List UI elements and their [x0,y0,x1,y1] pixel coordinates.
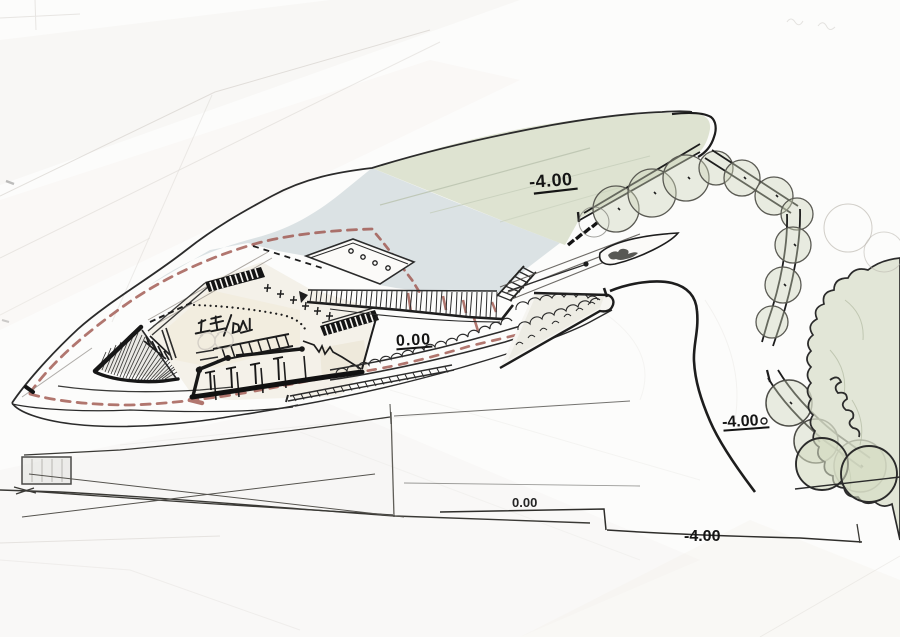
svg-text:-4.00: -4.00 [684,528,721,545]
svg-text:0.00: 0.00 [512,495,537,510]
svg-text:-4.00: -4.00 [528,169,573,192]
